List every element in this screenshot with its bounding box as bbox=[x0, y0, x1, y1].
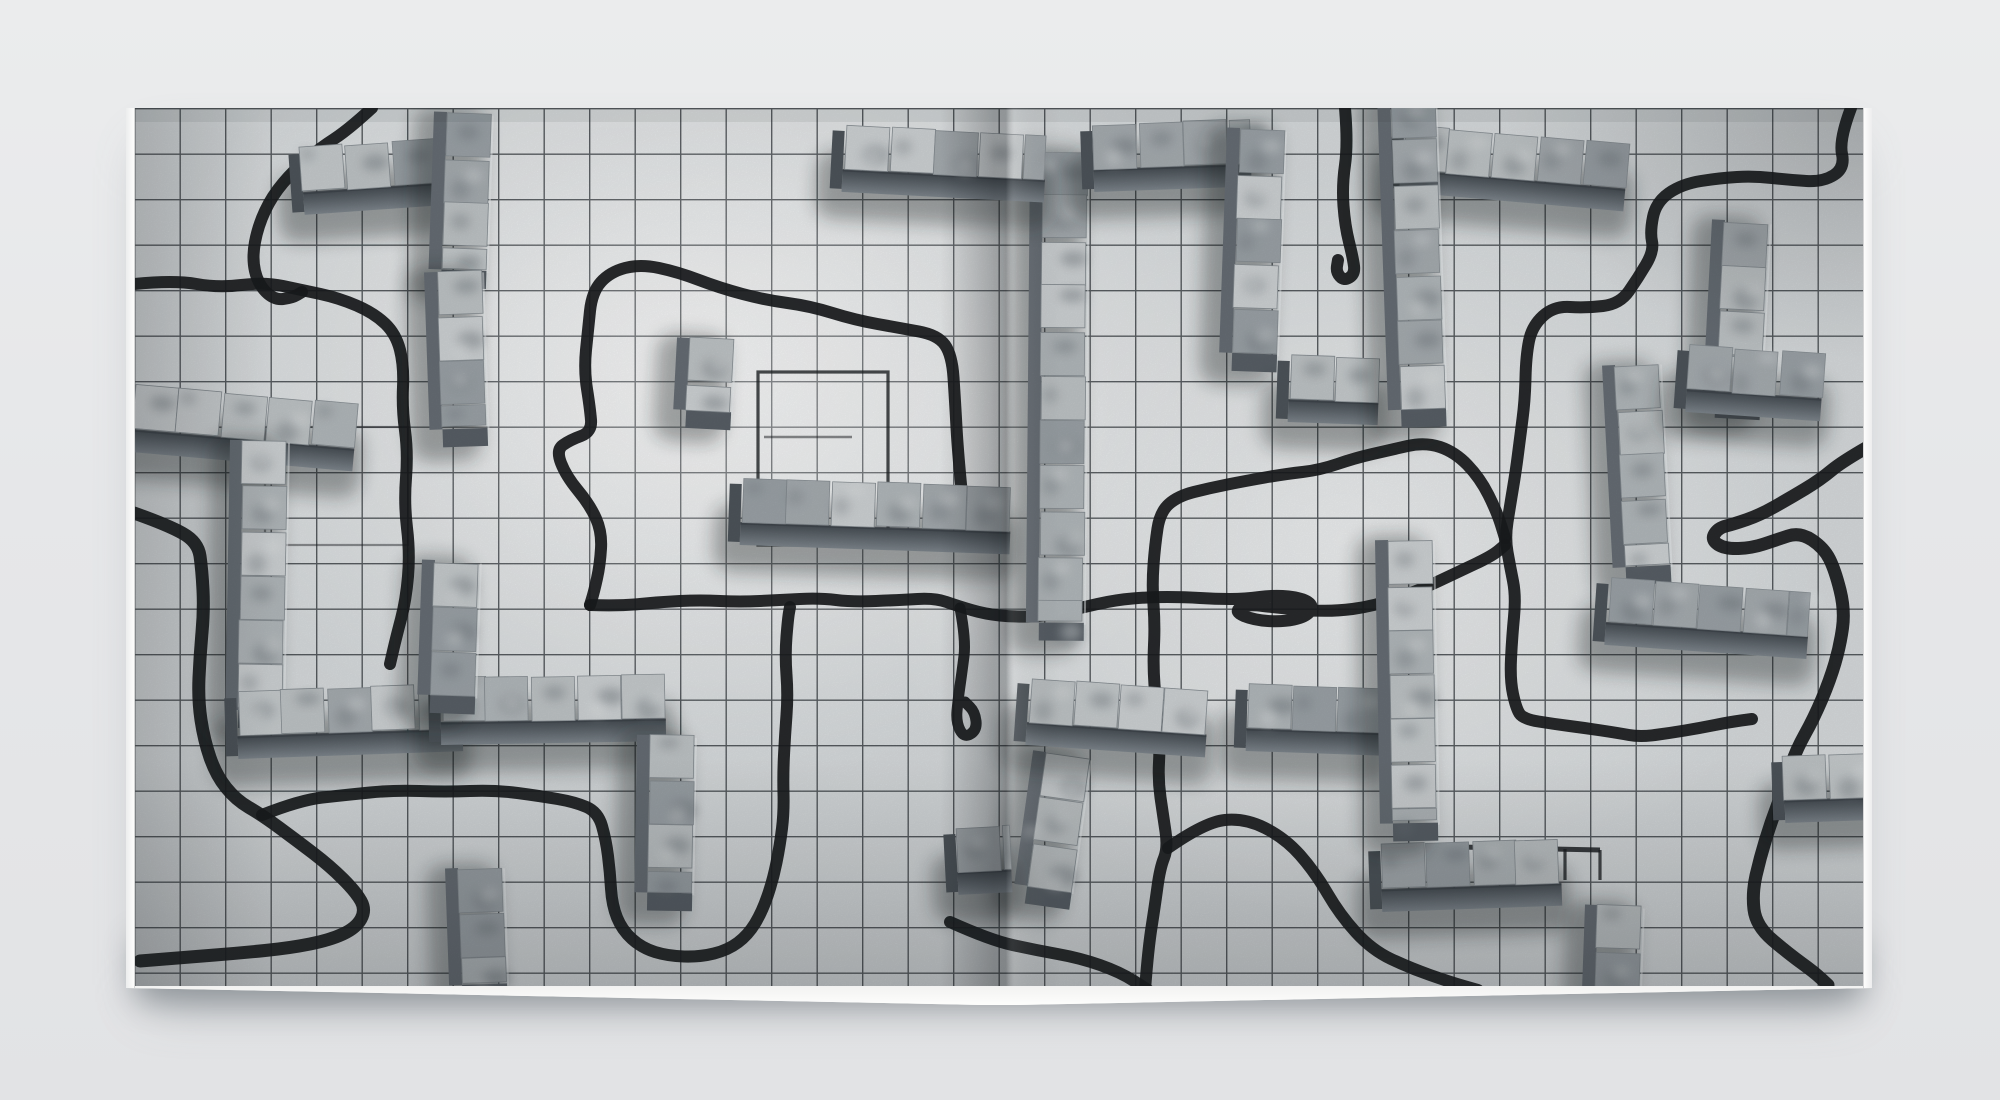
page-fore-edge-right bbox=[1863, 108, 1872, 1005]
artwork-photo bbox=[134, 108, 1864, 986]
open-book-spread bbox=[126, 108, 1872, 1005]
film-grain bbox=[134, 108, 1864, 986]
page-fore-edge-left bbox=[126, 108, 135, 1005]
photograph-scene bbox=[0, 0, 2000, 1100]
